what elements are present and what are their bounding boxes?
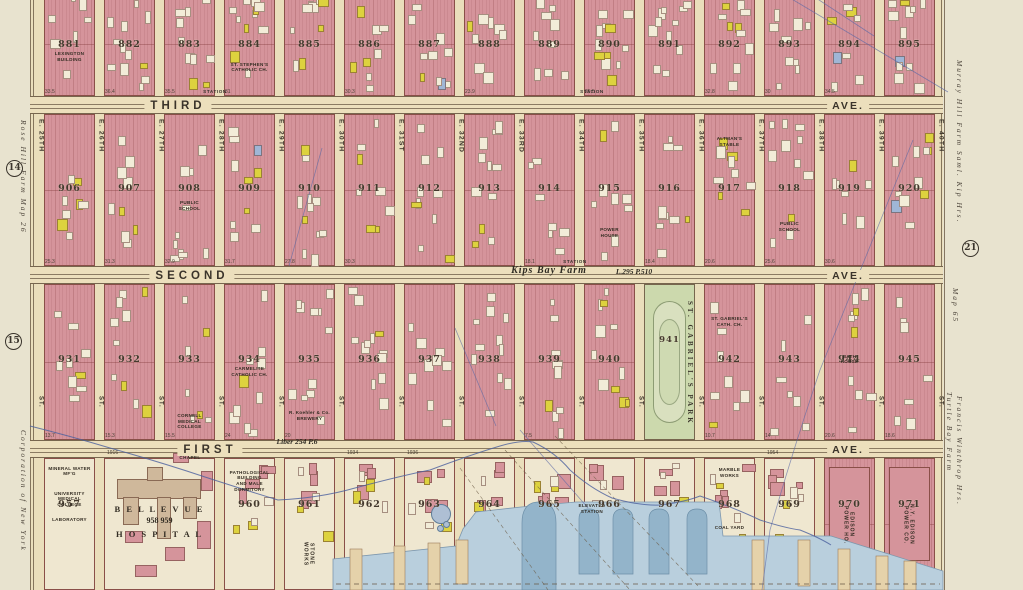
station-label: STATION xyxy=(203,89,227,94)
street-st-suffix: ST. xyxy=(697,396,704,412)
block-number: 935 xyxy=(285,354,334,365)
street-label-26th: E. 26TH xyxy=(96,119,105,181)
block-number: 895 xyxy=(885,39,934,50)
street-label-38th: E. 38TH xyxy=(816,119,825,181)
block-number: 965 xyxy=(525,499,574,510)
frontage-dimension: 33.5 xyxy=(45,89,55,95)
right-margin-map65-text: Map 65 xyxy=(948,288,960,338)
street-st-suffix: ST. xyxy=(877,396,884,412)
frontage-dimension: 10.7 xyxy=(705,433,715,439)
block-number: 891 xyxy=(645,39,694,50)
block-number: 942 xyxy=(705,354,754,365)
second-avenue-label: SECOND xyxy=(149,270,234,282)
lot-grant-number: 1934 xyxy=(347,450,358,456)
frontage-dimension: 24 xyxy=(225,433,231,439)
block-poi-label: EDISON POWER HO. xyxy=(843,499,855,551)
first-avenue-ave-label: AVE. xyxy=(827,444,869,456)
block-number: 885 xyxy=(285,39,334,50)
frontage-dimension: 7.5 xyxy=(525,433,532,439)
block-number: 943 xyxy=(765,354,814,365)
block-number: 881 xyxy=(45,39,94,50)
map-annotation-2: Liber 254 P.6 xyxy=(277,437,318,446)
block-number: 887 xyxy=(405,39,454,50)
block-number: 963 xyxy=(405,499,454,510)
block-number: 884 xyxy=(225,39,274,50)
block-number: 914 xyxy=(525,183,574,194)
block-number: 910 xyxy=(285,183,334,194)
block-number: 916 xyxy=(645,183,694,194)
block-poi-label: MINERAL WATER MF'G xyxy=(46,466,93,477)
block-number: 920 xyxy=(885,183,934,194)
lot-grant-number: 1936 xyxy=(407,450,418,456)
frontage-dimension: 20.6 xyxy=(825,433,835,439)
block-poi-label: ST. GABRIEL'S CATH. CH. xyxy=(706,316,753,327)
block-number: 931 xyxy=(45,354,94,365)
right-margin-farm-text: Murray Hill Farm Saml. Kip Hrs. xyxy=(950,60,964,300)
street-st-suffix: ST. xyxy=(637,396,644,412)
frontage-dimension: 32.8 xyxy=(705,89,715,95)
street-label-34th: E. 34TH xyxy=(576,119,585,181)
frontage-dimension: 18.6 xyxy=(885,433,895,439)
block-number: 936 xyxy=(345,354,394,365)
block-poi-label: PATHOLOGICAL BUILDING AND MALE DORMITORY xyxy=(226,470,273,493)
block-number: 913 xyxy=(465,183,514,194)
frontage-dimension: 23.9 xyxy=(465,89,475,95)
frontage-dimension: 18.4 xyxy=(645,259,655,265)
frontage-dimension: 30.3 xyxy=(345,259,355,265)
block-number: 908 xyxy=(165,183,214,194)
block-number: 961 xyxy=(285,499,334,510)
frontage-dimension: 15.5 xyxy=(165,433,175,439)
hospital-block-numbers: 958 959 xyxy=(105,516,214,525)
street-label-37th: E. 37TH xyxy=(756,119,765,181)
station-label: STATION xyxy=(580,89,604,94)
block-poi-label: LEXINGTON BUILDING xyxy=(46,51,93,62)
frontage-dimension: 32.9 xyxy=(165,259,175,265)
block-poi-label: LABORATORY xyxy=(46,517,93,523)
block-number: 917 xyxy=(705,183,754,194)
street-st-suffix: ST. xyxy=(757,396,764,412)
block-number: 938 xyxy=(465,354,514,365)
block-poi-label: N.Y. EDISON POWER CO. xyxy=(903,499,915,551)
lot-grant-number: 1916 xyxy=(107,450,118,456)
lot-grant-number: 1954 xyxy=(767,450,778,456)
station-label: STATION xyxy=(563,259,587,264)
frontage-dimension: 30 xyxy=(765,89,771,95)
frontage-dimension: 25.3 xyxy=(45,259,55,265)
street-label-39th: E. 39TH xyxy=(876,119,885,181)
street-label-35th: E. 35TH xyxy=(636,119,645,181)
frontage-dimension: 27.8 xyxy=(285,259,295,265)
street-st-suffix: ST. xyxy=(277,396,284,412)
block-poi-label: MARBLE WORKS xyxy=(706,467,753,478)
block-number: 886 xyxy=(345,39,394,50)
street-st-suffix: ST. xyxy=(817,396,824,412)
frontage-dimension: 35.5 xyxy=(165,89,175,95)
block-number: 911 xyxy=(345,183,394,194)
block-number: 968 xyxy=(705,499,754,510)
street-st-suffix: ST. xyxy=(157,396,164,412)
street-st-suffix: ST. xyxy=(37,396,44,412)
street-label-40th: E. 40TH xyxy=(936,119,945,181)
block-poi-label: BATH HOUSE xyxy=(826,354,873,365)
block-number: 882 xyxy=(105,39,154,50)
street-label-32th: E. 32ND xyxy=(456,119,465,181)
street-label-30th: E. 30TH xyxy=(336,119,345,181)
street-st-suffix: ST. xyxy=(937,396,944,412)
frontage-dimension: 34.5 xyxy=(825,89,835,95)
block-number: 964 xyxy=(465,499,514,510)
right-margin-winthrop-text: Francis Winthrop Hrs. xyxy=(954,396,964,516)
block-number: 909 xyxy=(225,183,274,194)
frontage-dimension: 30.3 xyxy=(345,89,355,95)
hospital-name-bottom: H O S P I T A L xyxy=(105,529,214,539)
map-annotation-4: CHAPEL xyxy=(179,455,200,461)
block-poi-label: ALTMAN'S STABLE xyxy=(706,136,753,147)
street-st-suffix: ST. xyxy=(517,396,524,412)
street-st-suffix: ST. xyxy=(457,396,464,412)
left-margin-farm-text: Rose Hill Farm Map 26 xyxy=(14,120,28,280)
block-poi-label: R. Koehler & Co. BREWERY xyxy=(286,410,333,421)
street-st-suffix: ST. xyxy=(337,396,344,412)
street-label-29th: E. 29TH xyxy=(276,119,285,181)
street-st-suffix: ST. xyxy=(97,396,104,412)
third-avenue-label: THIRD xyxy=(144,100,211,112)
frontage-dimension: 13.7 xyxy=(45,433,55,439)
block-number: 960 xyxy=(225,499,274,510)
block-number: 966 xyxy=(585,499,634,510)
block-number: 907 xyxy=(105,183,154,194)
block-941: ST. GABRIEL'S PARK941 xyxy=(644,284,695,440)
street-st-suffix: ST. xyxy=(217,396,224,412)
street-label-28th: E. 28TH xyxy=(216,119,225,181)
block-number: 912 xyxy=(405,183,454,194)
block-number: 969 xyxy=(765,499,814,510)
frontage-dimension: 14 xyxy=(765,433,771,439)
street-label-36th: E. 36TH xyxy=(696,119,705,181)
street-label-27th: E. 27TH xyxy=(156,119,165,181)
block-number: 934 xyxy=(225,354,274,365)
block-poi-label: CORNELL MEDICAL COLLEGE xyxy=(166,413,213,430)
block-number: 932 xyxy=(105,354,154,365)
block-number: 915 xyxy=(585,183,634,194)
second-avenue-ave-label: AVE. xyxy=(827,270,869,282)
block-number: 939 xyxy=(525,354,574,365)
street-label-33th: E. 33RD xyxy=(516,119,525,181)
frontage-dimension: 20.6 xyxy=(705,259,715,265)
map-annotation-0: Kips Bay Farm xyxy=(511,265,587,276)
block-number: 892 xyxy=(705,39,754,50)
frontage-dimension: 31.7 xyxy=(225,259,235,265)
block-number: 918 xyxy=(765,183,814,194)
plate-ref-circle-14: 14 xyxy=(6,160,23,177)
map-canvas: THIRDAVE.STATIONSTATION33.536.435.53130.… xyxy=(0,0,1023,590)
block-number: 937 xyxy=(405,354,454,365)
left-margin-corporation-text: Corporation of New York xyxy=(14,430,28,588)
frontage-dimension: 25.6 xyxy=(765,259,775,265)
block-poi-label: STONE WORKS xyxy=(303,528,315,580)
block-number: 919 xyxy=(825,183,874,194)
frontage-dimension: 36.4 xyxy=(105,89,115,95)
block-number: 890 xyxy=(585,39,634,50)
block-poi-label: POWER HOUSE xyxy=(586,227,633,238)
plate-ref-circle-21: 21 xyxy=(962,240,979,257)
hospital-name-top: B E L L E V U E xyxy=(105,504,214,514)
block-number: 889 xyxy=(525,39,574,50)
block-number: 906 xyxy=(45,183,94,194)
block-poi-label: PUBLIC SCHOOL xyxy=(166,200,213,211)
block-number: 940 xyxy=(585,354,634,365)
block-number: 893 xyxy=(765,39,814,50)
right-margin-turtle-bay-text: Turtle Bay Farm xyxy=(944,392,954,502)
block-poi-label: UNIVERSITY MEDICAL COLLEGE xyxy=(46,491,93,508)
block-number: 883 xyxy=(165,39,214,50)
block-number: 933 xyxy=(165,354,214,365)
map-annotation-1: L.295 P.510 xyxy=(616,267,652,276)
block-poi-label: ST. STEPHEN'S CATHOLIC CH. xyxy=(226,62,273,73)
plate-ref-circle-15: 15 xyxy=(5,333,22,350)
third-avenue-ave-label: AVE. xyxy=(827,100,869,112)
frontage-dimension: 30.6 xyxy=(825,259,835,265)
block-number: 894 xyxy=(825,39,874,50)
frontage-dimension: 31.3 xyxy=(105,259,115,265)
block-poi-label: PUBLIC SCHOOL xyxy=(766,221,813,232)
block-number: 967 xyxy=(645,499,694,510)
park-name: ST. GABRIEL'S PARK xyxy=(645,299,694,427)
frontage-dimension: 15.3 xyxy=(105,433,115,439)
block-poi-label: COAL YARD xyxy=(706,525,753,531)
block-poi-label: CARMELITE CATHOLIC CH. xyxy=(226,366,273,377)
street-st-suffix: ST. xyxy=(577,396,584,412)
block-number: 962 xyxy=(345,499,394,510)
street-label-31th: E. 31ST xyxy=(396,119,405,181)
street-label-25th: E. 25TH xyxy=(36,119,45,181)
block-number: 888 xyxy=(465,39,514,50)
street-st-suffix: ST. xyxy=(397,396,404,412)
block-number: 945 xyxy=(885,354,934,365)
